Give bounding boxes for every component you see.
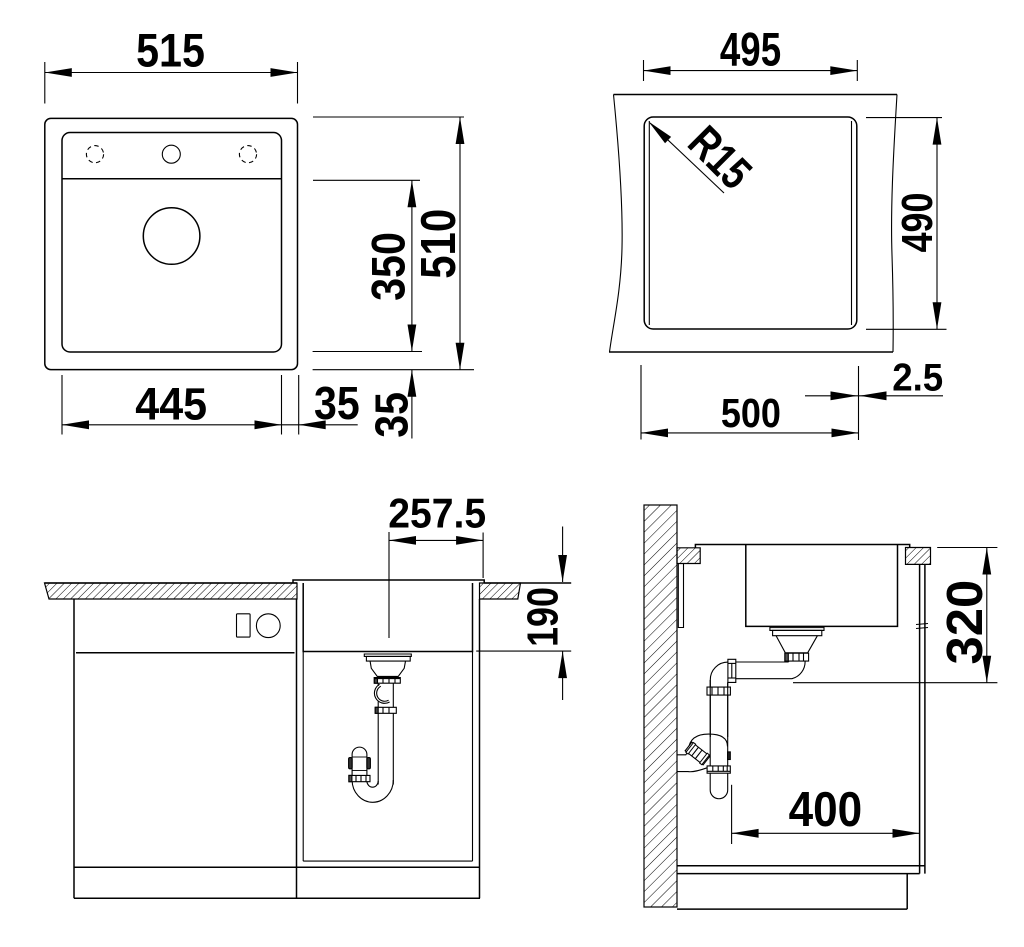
svg-text:510: 510 xyxy=(412,209,466,279)
svg-text:257.5: 257.5 xyxy=(388,490,486,537)
svg-text:350: 350 xyxy=(361,232,414,301)
svg-text:190: 190 xyxy=(519,587,568,647)
svg-text:445: 445 xyxy=(135,379,207,430)
svg-text:400: 400 xyxy=(789,783,863,837)
svg-text:2.5: 2.5 xyxy=(892,356,943,399)
svg-text:515: 515 xyxy=(136,24,205,77)
svg-text:320: 320 xyxy=(936,580,993,665)
svg-text:495: 495 xyxy=(720,22,781,75)
svg-text:500: 500 xyxy=(721,390,781,436)
svg-text:35: 35 xyxy=(314,377,360,429)
svg-text:35: 35 xyxy=(365,392,417,438)
svg-text:490: 490 xyxy=(893,193,942,253)
